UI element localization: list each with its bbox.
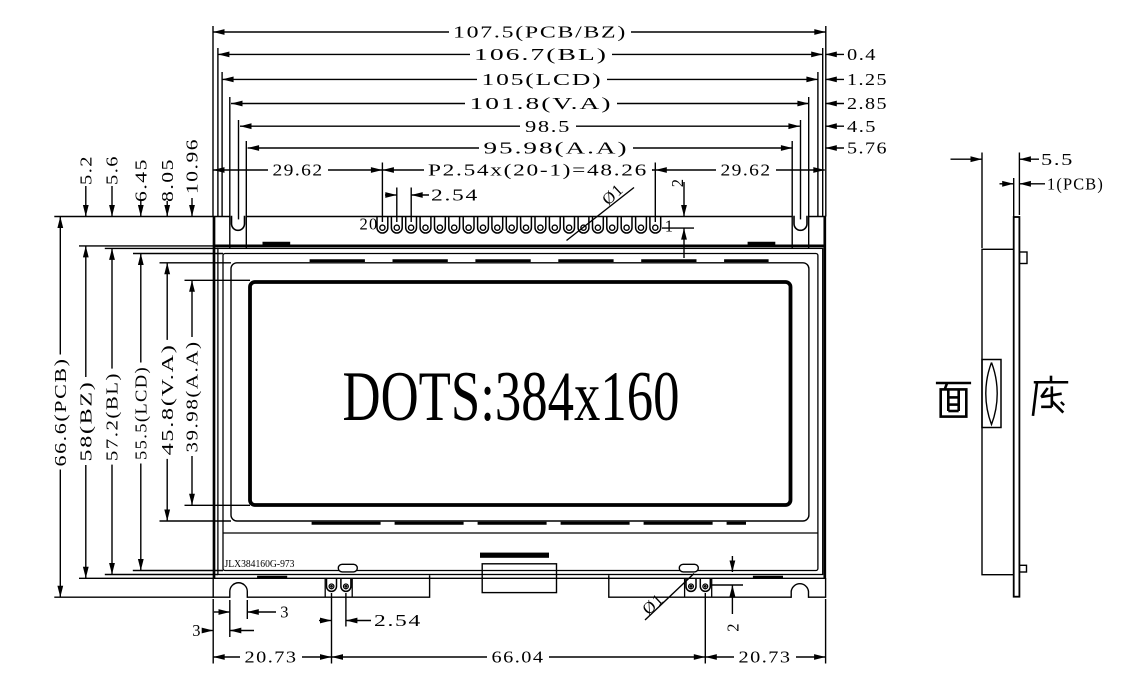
svg-text:4.5: 4.5 xyxy=(847,117,877,136)
svg-text:1.25: 1.25 xyxy=(847,70,888,89)
svg-text:0.4: 0.4 xyxy=(847,45,877,64)
svg-text:2.54: 2.54 xyxy=(431,186,479,205)
svg-text:5.2: 5.2 xyxy=(76,155,95,185)
svg-text:Ø1: Ø1 xyxy=(638,589,667,618)
svg-text:39.98(A.A): 39.98(A.A) xyxy=(183,341,202,453)
svg-text:JLX384160G-973: JLX384160G-973 xyxy=(225,559,295,570)
svg-text:66.04: 66.04 xyxy=(492,648,545,667)
svg-text:66.6(PCB): 66.6(PCB) xyxy=(51,358,70,467)
svg-text:98.5: 98.5 xyxy=(525,117,571,136)
svg-text:5.5: 5.5 xyxy=(1041,150,1074,169)
svg-text:Ø1: Ø1 xyxy=(598,180,627,209)
svg-text:5.6: 5.6 xyxy=(103,155,122,185)
svg-text:2: 2 xyxy=(668,178,687,187)
svg-text:2: 2 xyxy=(723,622,742,631)
svg-text:20: 20 xyxy=(360,215,379,234)
svg-text:20.73: 20.73 xyxy=(739,648,792,667)
svg-text:45.8(V.A): 45.8(V.A) xyxy=(158,343,177,455)
svg-text:105(LCD): 105(LCD) xyxy=(482,70,603,89)
svg-text:57.2(BL): 57.2(BL) xyxy=(103,372,122,461)
svg-text:10.96: 10.96 xyxy=(183,138,202,194)
svg-text:3: 3 xyxy=(192,621,201,640)
svg-text:8.05: 8.05 xyxy=(158,158,177,202)
svg-text:29.62: 29.62 xyxy=(273,161,324,180)
svg-text:29.62: 29.62 xyxy=(721,161,772,180)
svg-text:6.45: 6.45 xyxy=(131,158,150,202)
svg-text:2.85: 2.85 xyxy=(847,94,888,113)
svg-text:101.8(V.A): 101.8(V.A) xyxy=(470,94,613,113)
svg-text:DOTS:384x160: DOTS:384x160 xyxy=(343,358,680,436)
svg-text:1: 1 xyxy=(665,217,674,236)
svg-text:58(BZ): 58(BZ) xyxy=(76,381,95,462)
svg-text:106.7(BL): 106.7(BL) xyxy=(474,45,608,64)
svg-text:55.5(LCD): 55.5(LCD) xyxy=(131,366,150,460)
svg-text:P2.54x(20-1)=48.26: P2.54x(20-1)=48.26 xyxy=(428,161,648,180)
svg-text:2.54: 2.54 xyxy=(374,611,422,630)
svg-text:95.98(A.A): 95.98(A.A) xyxy=(484,139,629,158)
svg-text:1(PCB): 1(PCB) xyxy=(1047,174,1104,193)
svg-text:3: 3 xyxy=(280,603,289,622)
svg-text:107.5(PCB/BZ): 107.5(PCB/BZ) xyxy=(453,23,627,42)
svg-text:20.73: 20.73 xyxy=(245,648,298,667)
svg-text:5.76: 5.76 xyxy=(847,139,888,158)
